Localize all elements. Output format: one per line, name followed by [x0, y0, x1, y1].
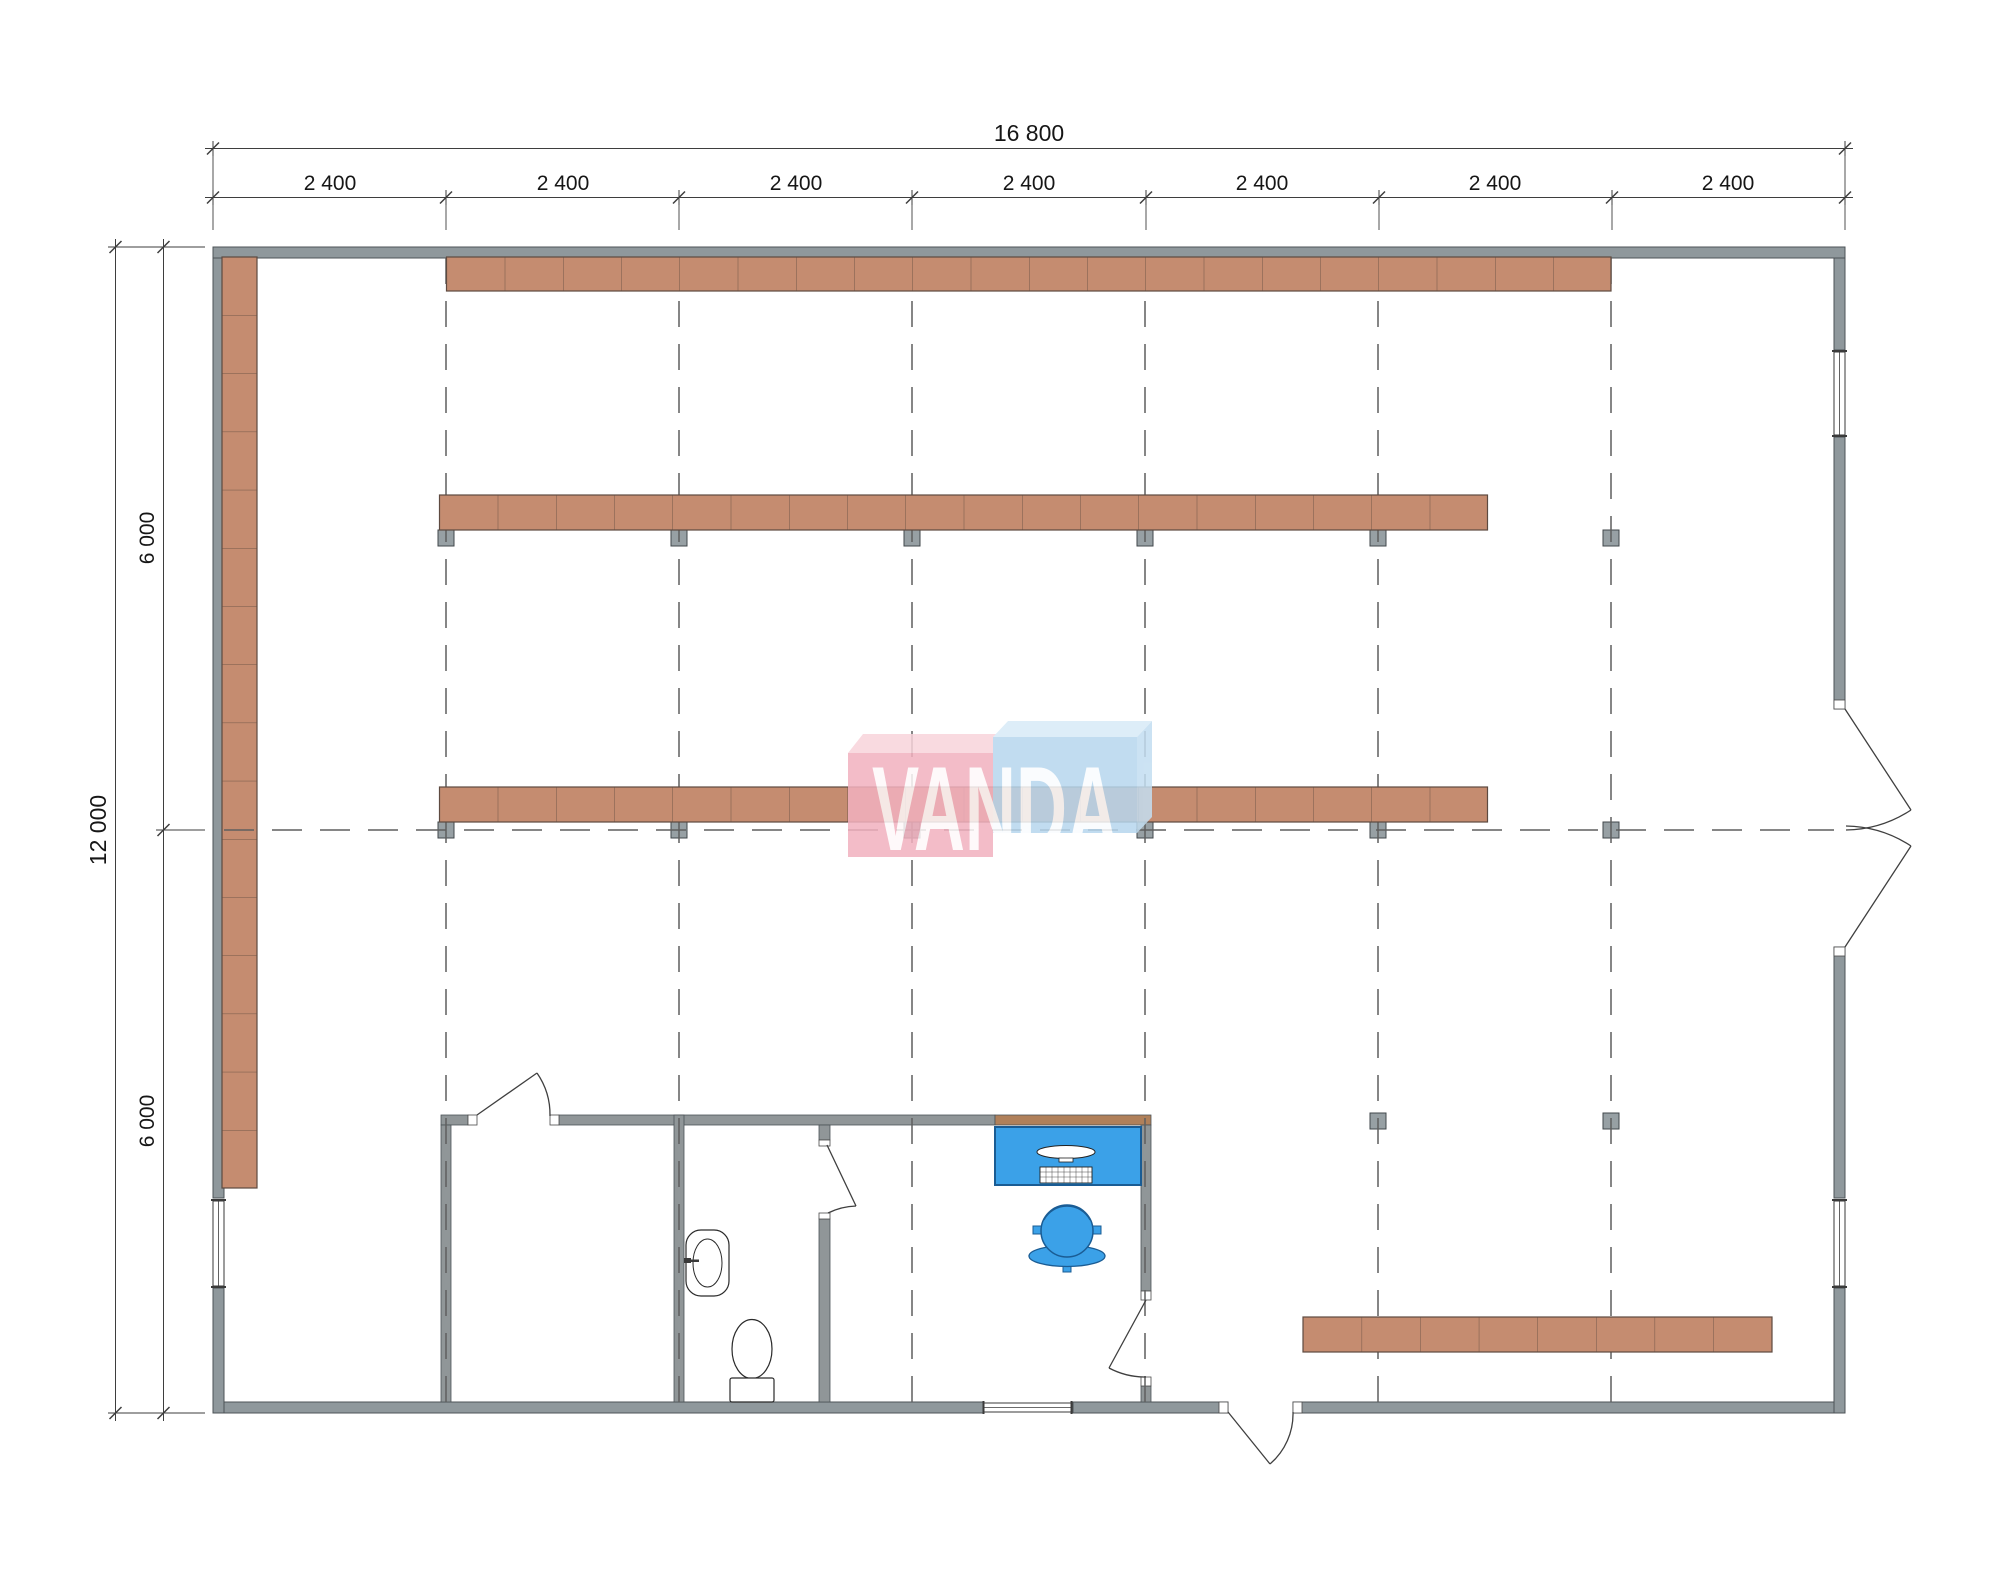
dim-bay-label-4: 2 400	[1003, 172, 1056, 195]
wood-partition	[995, 1115, 1151, 1125]
office-chair	[1029, 1205, 1105, 1272]
dim-bay-label-7: 2 400	[1702, 172, 1755, 195]
bottom-wall-window	[984, 1401, 1073, 1414]
partition-h-seg1	[441, 1115, 468, 1125]
toilet-tank	[730, 1378, 774, 1402]
sink-tap	[684, 1258, 691, 1263]
shelf-middle-upper-run	[440, 495, 1488, 530]
dim-height-seg-label-2: 6 000	[136, 1095, 159, 1148]
partition-office-right-stub	[1141, 1386, 1151, 1402]
computer-keyboard	[1040, 1167, 1092, 1183]
wall-bottom-mid-seg	[1073, 1402, 1228, 1413]
office-desk	[995, 1127, 1141, 1185]
right-wall-window-bottom	[1832, 1200, 1847, 1287]
shelf-bottom-right-run	[1303, 1317, 1772, 1352]
vanda-watermark: VANDA	[848, 721, 1152, 876]
dim-bay-label-2: 2 400	[537, 172, 590, 195]
wc-door	[827, 1145, 856, 1213]
wc-toilet	[730, 1320, 774, 1403]
logo-blue-box-top	[993, 721, 1152, 737]
wall-right-seg1	[1834, 258, 1845, 350]
office-door	[1109, 1300, 1146, 1377]
partition-wc-office-bottom	[819, 1219, 830, 1402]
dim-bay-label-5: 2 400	[1236, 172, 1289, 195]
shelf-left-wall-run	[222, 257, 257, 1188]
wall-right-seg4	[1834, 1288, 1845, 1413]
wall-top	[213, 247, 1845, 258]
logo-text: VANDA	[872, 742, 1118, 876]
dim-bay-label-3: 2 400	[770, 172, 823, 195]
shelf-top-wall-run	[447, 257, 1612, 291]
floor-plan-svg: VANDA 16 800 2 400 2 400 2 400 2 400 2 4…	[0, 0, 2000, 1574]
dim-bay-label-1: 2 400	[304, 172, 357, 195]
wall-right-seg3	[1834, 947, 1845, 1198]
dim-bay-label-6: 2 400	[1469, 172, 1522, 195]
right-wall-window-top	[1832, 351, 1847, 436]
floor-plan-canvas: VANDA 16 800 2 400 2 400 2 400 2 400 2 4…	[0, 0, 2000, 1574]
rear-exit-door	[1228, 1412, 1293, 1464]
left-wall-window	[211, 1200, 226, 1287]
partition-wc-office-top	[819, 1125, 830, 1140]
storage-room-door	[477, 1073, 550, 1116]
partition-office-right-top	[1141, 1125, 1151, 1291]
double-entrance-door	[1845, 709, 1911, 947]
wall-left-lower-seg	[213, 1288, 224, 1413]
wall-bottom-right-seg	[1293, 1402, 1845, 1413]
partition-h-seg2	[559, 1115, 995, 1125]
dim-total-width-label: 16 800	[994, 120, 1064, 146]
wall-bottom-left-seg	[213, 1402, 983, 1413]
dim-total-height-label: 12 000	[85, 795, 111, 865]
wall-right-seg2	[1834, 437, 1845, 709]
dim-height-seg-label-1: 6 000	[136, 512, 159, 565]
logo-blue-box-side	[1137, 721, 1152, 833]
wc-sink	[684, 1230, 729, 1296]
